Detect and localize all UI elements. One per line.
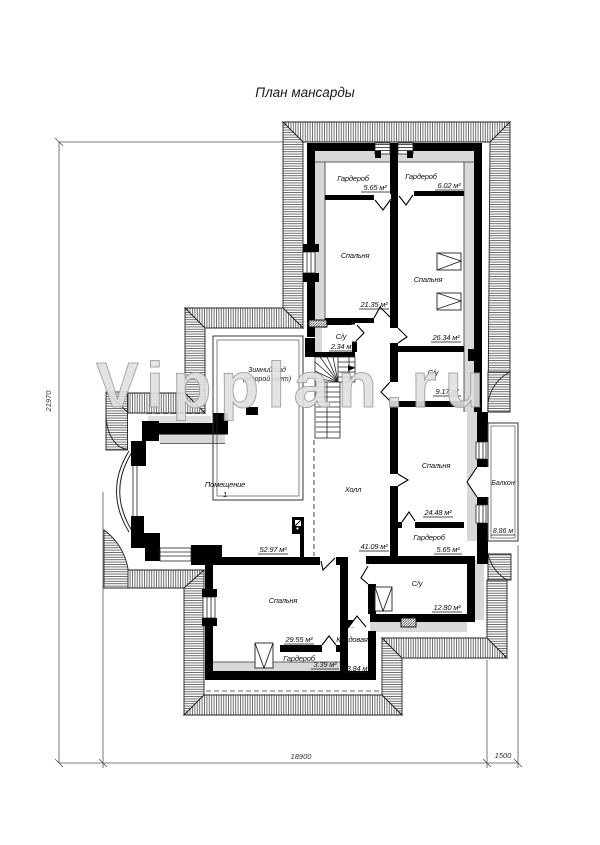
svg-text:24.48 м²: 24.48 м²	[424, 508, 453, 517]
svg-text:21970: 21970	[44, 390, 53, 413]
svg-text:План мансарды: План мансарды	[255, 85, 355, 100]
svg-text:5.65 м²: 5.65 м²	[437, 545, 461, 554]
svg-text:12.80 м²: 12.80 м²	[434, 603, 462, 612]
svg-text:6.02 м²: 6.02 м²	[438, 181, 462, 190]
svg-text:26.34 м²: 26.34 м²	[432, 333, 461, 342]
svg-text:52.97 м²: 52.97 м²	[260, 545, 288, 554]
svg-text:Гардероб: Гардероб	[405, 172, 437, 181]
svg-text:Спальня: Спальня	[341, 251, 370, 260]
svg-text:1: 1	[223, 490, 227, 499]
svg-text:Кладовая: Кладовая	[336, 635, 368, 644]
svg-text:21.35 м²: 21.35 м²	[360, 300, 389, 309]
svg-text:8.86 м: 8.86 м	[493, 528, 514, 535]
svg-text:С/у: С/у	[336, 332, 348, 341]
svg-text:29.55 м²: 29.55 м²	[285, 635, 314, 644]
svg-text:41.09 м²: 41.09 м²	[361, 542, 389, 551]
svg-text:Гардероб: Гардероб	[413, 533, 445, 542]
svg-text:Гардероб: Гардероб	[337, 174, 369, 183]
svg-text:Балкон: Балкон	[491, 480, 515, 487]
svg-text:Гардероб: Гардероб	[283, 654, 315, 663]
svg-text:С/у: С/у	[412, 579, 424, 588]
svg-text:18900: 18900	[291, 752, 313, 761]
svg-text:3.39 м²: 3.39 м²	[314, 660, 338, 669]
svg-text:3.84 м: 3.84 м	[347, 664, 368, 673]
svg-text:5.65 м²: 5.65 м²	[364, 183, 388, 192]
svg-text:Помещение: Помещение	[205, 480, 245, 489]
svg-text:Спальня: Спальня	[422, 461, 451, 470]
svg-text:Спальня: Спальня	[269, 596, 298, 605]
svg-text:Холл: Холл	[344, 485, 362, 494]
svg-text:1500: 1500	[495, 751, 513, 760]
svg-text:Спальня: Спальня	[414, 275, 443, 284]
